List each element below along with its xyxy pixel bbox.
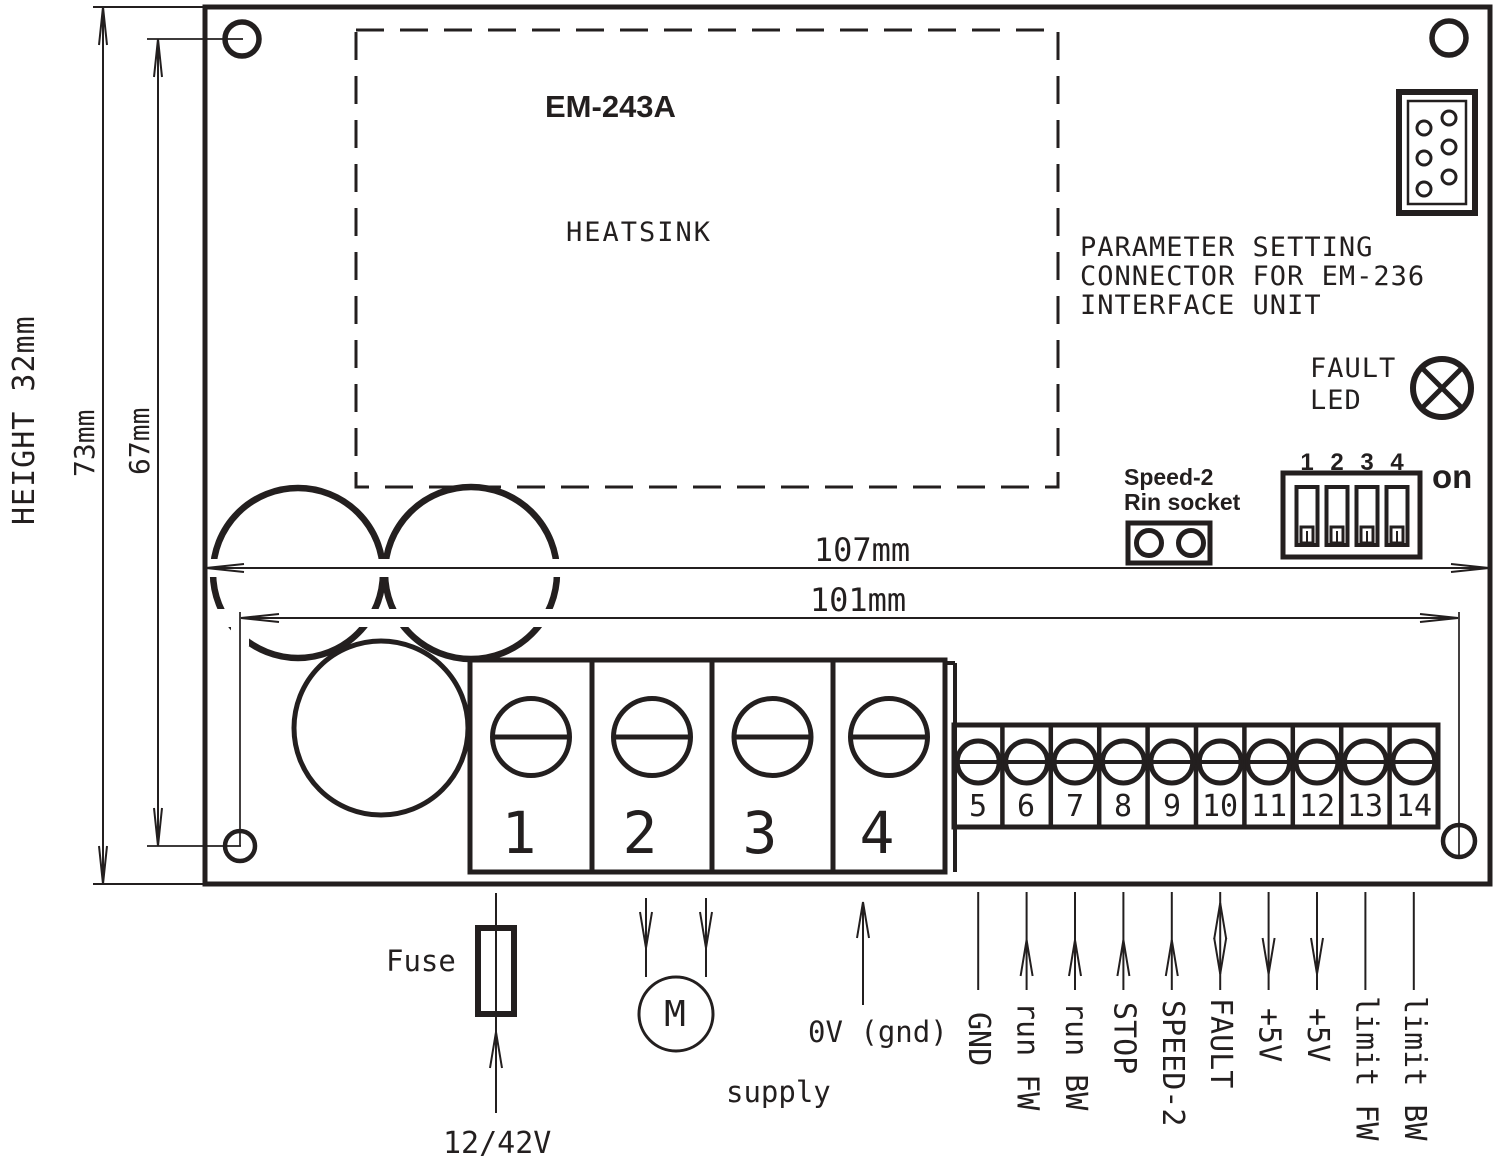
param-note-line1: PARAMETER SETTING — [1080, 232, 1373, 263]
connector-pin-5 — [1442, 170, 1456, 184]
pin-label-run-bw: run BW — [1058, 1002, 1093, 1111]
gnd-circuit: 0V (gnd) supply — [726, 902, 948, 1109]
fuse-label: Fuse — [386, 944, 456, 978]
parameter-connector — [1399, 92, 1475, 213]
dim-73-label: 73mm — [68, 410, 101, 477]
signal-terminal-11-num: 11 — [1251, 789, 1287, 824]
heatsink-label: HEATSINK — [566, 217, 712, 248]
dim-101-label: 101mm — [810, 581, 906, 619]
speed2-label-line2: Rin socket — [1124, 489, 1241, 515]
pin-label-5v-2: +5V — [1300, 1008, 1335, 1062]
pin-label-stop: STOP — [1106, 1002, 1141, 1074]
signal-terminal-10-num: 10 — [1202, 789, 1238, 824]
connector-pin-6 — [1417, 182, 1431, 196]
motor-label: M — [664, 994, 686, 1035]
mounting-hole-top-right — [1432, 21, 1466, 55]
connector-pin-4 — [1417, 151, 1431, 165]
param-note-line2: CONNECTOR FOR EM-236 — [1080, 261, 1425, 292]
voltage-label: 12/42V — [443, 1126, 551, 1156]
board-model-label: EM-243A — [545, 89, 676, 124]
signal-terminal-8-num: 8 — [1114, 789, 1132, 824]
connector-pin-3 — [1442, 140, 1456, 154]
dim-107-label: 107mm — [814, 531, 910, 569]
power-terminal-4-num: 4 — [860, 799, 895, 867]
em-243a-board-drawing: EM-243A HEATSINK 107mm 101mm 73mm — [0, 0, 1500, 1156]
speed2-socket-body — [1128, 523, 1210, 563]
gnd-0v-label: 0V (gnd) — [808, 1015, 948, 1049]
speed2-socket: Speed-2 Rin socket — [1124, 464, 1241, 563]
signal-terminal-9-num: 9 — [1163, 789, 1181, 824]
fuse-circuit: Fuse 12/42V — [386, 893, 551, 1156]
pin-label-5v-1: +5V — [1252, 1008, 1287, 1062]
dip-switch: 1 2 3 4 on — [1283, 449, 1472, 557]
heatsink-dashed-outline — [356, 30, 1058, 487]
heatsink-area: EM-243A HEATSINK — [356, 30, 1058, 487]
capacitor-circle-3 — [294, 641, 468, 815]
power-terminal-1-num: 1 — [502, 799, 537, 867]
signal-terminal-12-num: 12 — [1299, 789, 1335, 824]
signal-wires: GND run FW run BW STOP SPEED-2 FAULT +5V… — [961, 892, 1432, 1141]
fault-led-label-line2: LED — [1310, 385, 1362, 416]
pin-label-speed2: SPEED-2 — [1155, 1000, 1190, 1126]
pin-label-fault: FAULT — [1203, 998, 1238, 1088]
speed2-socket-hole-2 — [1179, 531, 1204, 556]
signal-terminal-7-num: 7 — [1066, 789, 1084, 824]
dip-on-label: on — [1432, 458, 1472, 495]
pin-label-gnd: GND — [961, 1012, 996, 1066]
signal-terminal-13-num: 13 — [1347, 789, 1383, 824]
signal-terminal-14-num: 14 — [1396, 789, 1432, 824]
technical-drawing-page: EM-243A HEATSINK 107mm 101mm 73mm — [0, 0, 1500, 1156]
connector-pin-2 — [1417, 121, 1431, 135]
dimension-67mm: 67mm — [123, 39, 243, 846]
pin-label-run-fw: run FW — [1010, 1002, 1045, 1111]
parameter-connector-note: PARAMETER SETTING CONNECTOR FOR EM-236 I… — [1080, 232, 1425, 321]
connector-pin-1 — [1442, 111, 1456, 125]
param-note-line3: INTERFACE UNIT — [1080, 290, 1322, 321]
pin-label-limit-bw: limit BW — [1397, 996, 1432, 1141]
motor-circuit: M — [639, 898, 713, 1051]
signal-terminal-5-num: 5 — [969, 789, 987, 824]
speed2-label-line1: Speed-2 — [1124, 464, 1213, 490]
signal-terminal-6-num: 6 — [1017, 789, 1035, 824]
power-terminal-3-num: 3 — [743, 799, 778, 867]
connector-outer — [1399, 92, 1475, 213]
pin-label-limit-fw: limit FW — [1348, 996, 1383, 1141]
supply-label: supply — [726, 1075, 831, 1109]
height-note-label: HEIGHT 32mm — [7, 315, 42, 525]
power-terminal-2-num: 2 — [623, 799, 658, 867]
fault-led-label-line1: FAULT — [1310, 353, 1396, 384]
dim-67-label: 67mm — [123, 408, 156, 475]
fault-led: FAULT LED — [1310, 353, 1471, 417]
signal-terminal-strip: 5 6 7 8 9 10 11 12 13 14 — [954, 725, 1438, 827]
speed2-socket-hole-1 — [1137, 531, 1162, 556]
power-terminal-block: 1 2 3 4 — [470, 660, 955, 872]
